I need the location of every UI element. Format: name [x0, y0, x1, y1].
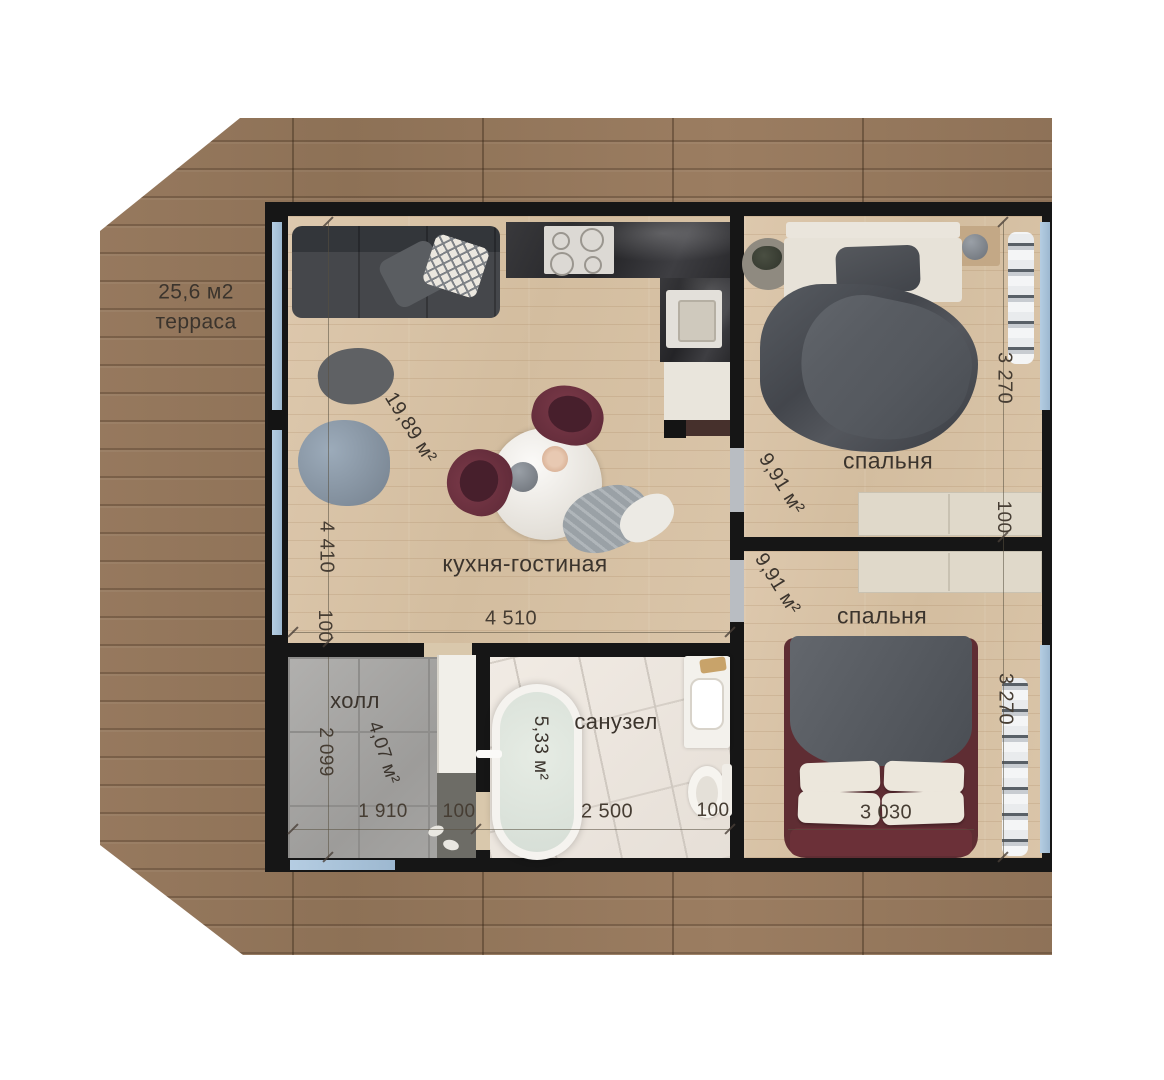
bathtub-faucet	[476, 750, 502, 758]
floor-plan: 25,6 м2 терраса кухня-гостиная 19,89 м² …	[0, 0, 1164, 1080]
table-decor	[542, 446, 568, 472]
hall-wardrobe	[437, 655, 476, 773]
bed2-footboard	[790, 828, 972, 856]
dim-bedroom2-height: 3 270	[994, 673, 1017, 725]
curtain-bedroom1	[1008, 232, 1034, 364]
bed1-headboard	[786, 222, 960, 238]
deck-joint	[672, 872, 674, 955]
kitchen-living-label: кухня-гостиная	[442, 551, 607, 578]
kitchen-shelf	[686, 420, 730, 436]
kitchen-counter	[506, 222, 730, 278]
door-hall-bathroom	[476, 792, 490, 850]
dim-bathroom-wall: 100	[697, 800, 730, 822]
deck-joint	[292, 118, 294, 202]
dim-bedrooms-wall: 100	[992, 501, 1014, 534]
dim-living-height: 4 410	[315, 521, 338, 573]
kitchen-sink-basin	[678, 300, 716, 342]
dim-hall-width: 1 910	[358, 801, 408, 823]
nightstand-decor	[962, 234, 988, 260]
dim-living-wall: 100	[313, 610, 335, 643]
wardrobe-bedroom1	[858, 492, 1042, 536]
deck-joint	[482, 118, 484, 202]
door-living-bedroom2	[730, 560, 744, 622]
deck-joint	[862, 872, 864, 955]
deck-joint	[292, 872, 294, 955]
burner-icon	[584, 256, 602, 274]
hall-label: холл	[330, 688, 380, 714]
terrace-name: терраса	[155, 308, 236, 338]
dim-line-hall-bath-bottom	[292, 829, 730, 830]
dim-line-living-bottom	[292, 632, 730, 633]
dim-hall-wall: 100	[443, 801, 476, 823]
deck-joint	[862, 118, 864, 202]
door-living-bedroom1	[730, 448, 744, 512]
bedroom1-label: спальня	[843, 448, 933, 475]
bathroom-label: санузел	[574, 709, 657, 735]
bathroom-sink	[690, 678, 724, 730]
window-bedroom2	[1040, 645, 1050, 853]
bed2-pillow	[800, 761, 881, 794]
kitchen-cabinet	[664, 362, 730, 420]
dim-line-living-left	[328, 222, 329, 643]
wardrobe-divider	[948, 494, 950, 534]
dim-line-bedrooms-right	[1003, 222, 1004, 858]
dim-bathroom-width: 2 500	[581, 801, 633, 824]
wardrobe-divider	[948, 553, 950, 591]
window-hall	[290, 860, 395, 870]
wardrobe-bedroom2	[858, 551, 1042, 593]
burner-icon	[552, 232, 570, 250]
beanbag-chair	[298, 420, 390, 506]
burner-icon	[550, 252, 574, 276]
bed2-pillow	[884, 761, 965, 794]
dim-bedroom1-height: 3 270	[993, 352, 1016, 404]
terrace-label: 25,6 м2 терраса	[155, 278, 236, 339]
deck-joint	[672, 118, 674, 202]
bathroom-area: 5,33 м²	[529, 716, 551, 780]
bedroom2-label: спальня	[837, 603, 927, 630]
glass-mullion	[268, 410, 286, 430]
dim-hall-height: 2 099	[314, 727, 336, 777]
dim-bed-width: 3 030	[860, 802, 912, 825]
deck-joint	[482, 872, 484, 955]
dim-line-bed-width	[788, 829, 974, 830]
bed2-blanket	[790, 636, 972, 766]
terrace-area: 25,6 м2	[155, 278, 236, 308]
window-bedroom1	[1040, 222, 1050, 410]
dim-living-width: 4 510	[485, 608, 537, 631]
cabinet-end	[664, 420, 686, 438]
burner-icon	[580, 228, 604, 252]
